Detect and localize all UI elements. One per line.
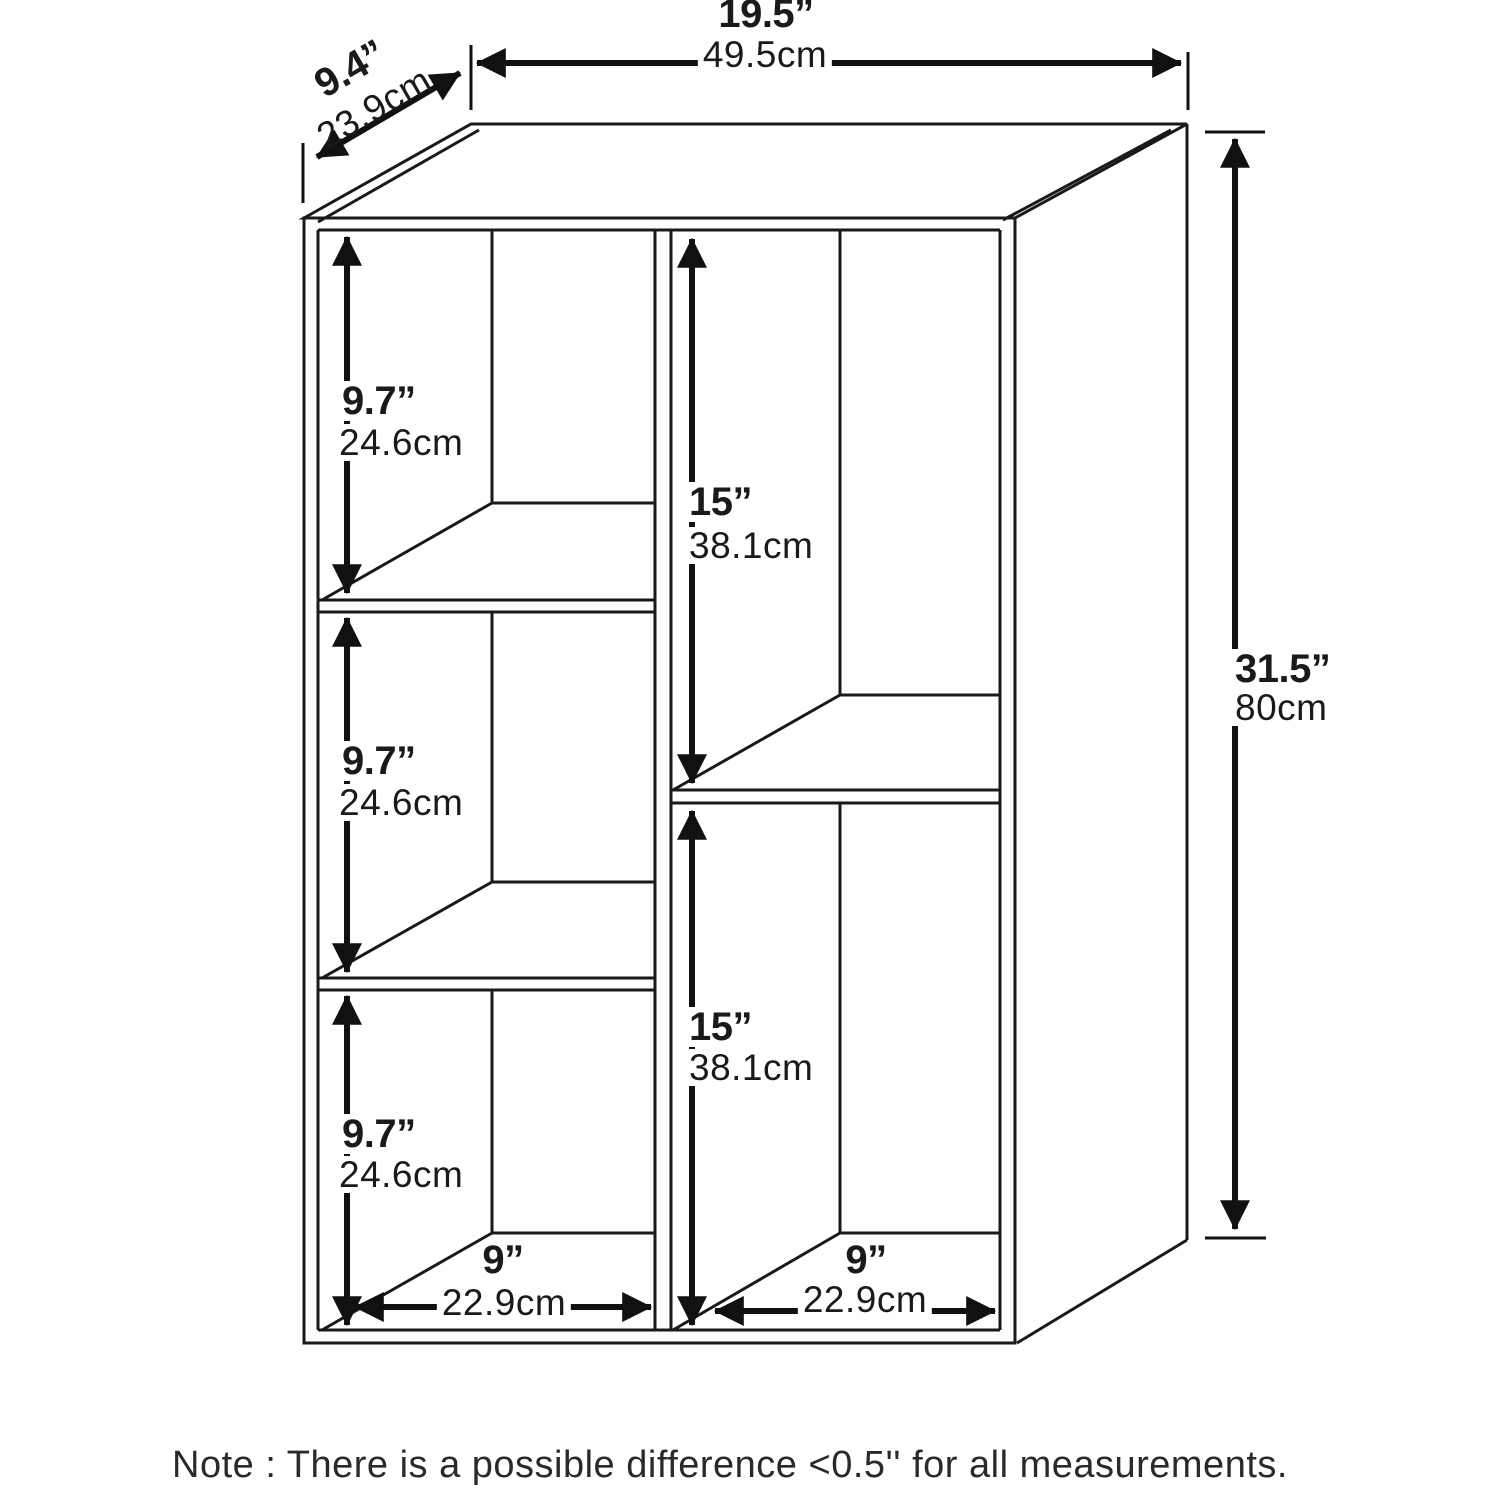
left-shelf-3-cm-label: 24.6cm [334,1156,468,1193]
left-shelf-2-cm-label: 24.6cm [334,784,468,821]
cubby-width-right-inches-label: 9” [845,1240,886,1280]
left-shelf-2-inches-label: 9.7” [337,741,421,781]
right-shelf-2-cm-label: 38.1cm [684,1049,818,1086]
cubby-width-right-cm-label: 22.9cm [798,1281,932,1318]
right-shelf [671,790,1000,803]
left-shelf-3-inches-label: 9.7” [337,1114,421,1154]
right-shelf-1-inches-label: 15” [684,482,757,522]
dimension-diagram: 19.5” 49.5cm 9.4” 23.9cm 31.5” 80cm 9.7”… [0,0,1497,1497]
left-shelf-1-cm-label: 24.6cm [334,424,468,461]
top-face [304,124,1187,222]
width-inches-label: 19.5” [718,0,813,34]
right-shelf-2-inches-label: 15” [684,1007,757,1047]
measurement-tolerance-note: Note : There is a possible difference <0… [172,1446,1288,1484]
cubby-width-left-inches-label: 9” [482,1240,523,1280]
side-panel-edge [1017,124,1187,1343]
cubby-width-left-cm-label: 22.9cm [437,1284,571,1321]
height-inches-label: 31.5” [1230,649,1335,689]
width-cm-label: 49.5cm [698,36,832,73]
center-divider [655,230,671,1330]
left-shelf-1-inches-label: 9.7” [337,381,421,421]
bookcase-line-art [0,0,1497,1497]
right-shelf-1-cm-label: 38.1cm [684,527,818,564]
height-cm-label: 80cm [1230,689,1332,726]
